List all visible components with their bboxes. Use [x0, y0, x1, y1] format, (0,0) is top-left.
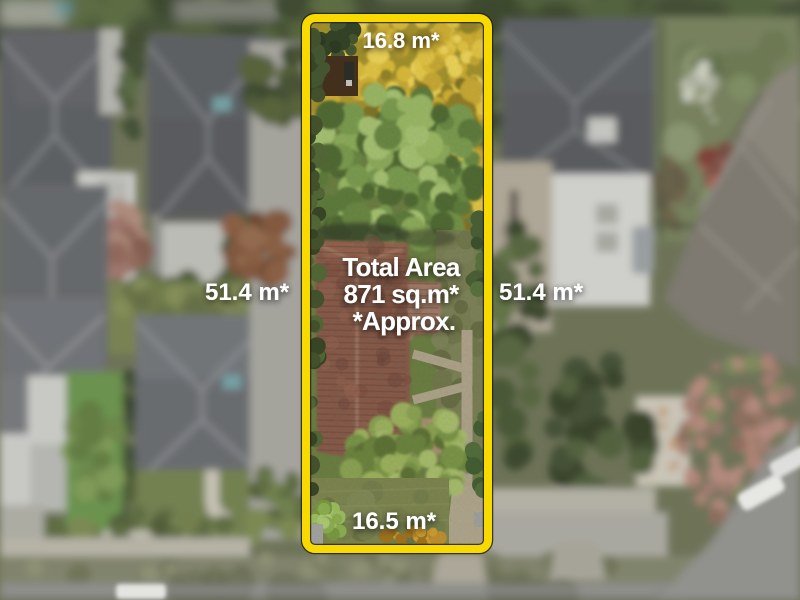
svg-text:16.5 m*: 16.5 m* [352, 508, 437, 535]
svg-text:Total Area: Total Area [342, 252, 460, 282]
svg-text:871 sq.m*: 871 sq.m* [343, 279, 460, 309]
svg-text:*Approx.: *Approx. [353, 306, 456, 336]
svg-text:51.4 m*: 51.4 m* [205, 279, 290, 306]
svg-text:16.8 m*: 16.8 m* [362, 28, 439, 53]
svg-text:51.4 m*: 51.4 m* [499, 279, 584, 306]
